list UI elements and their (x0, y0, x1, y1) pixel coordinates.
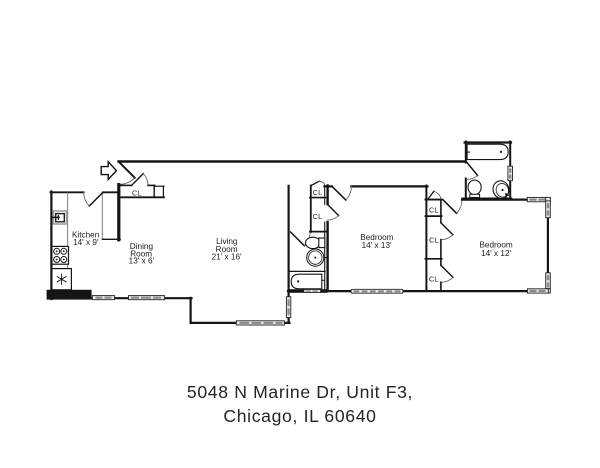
svg-text:14' x 12': 14' x 12' (481, 249, 511, 258)
svg-text:14' x 13': 14' x 13' (362, 241, 392, 250)
svg-text:13' x 6': 13' x 6' (129, 257, 155, 266)
svg-text:CL: CL (429, 206, 439, 215)
svg-text:Chicago, IL 60640: Chicago, IL 60640 (223, 406, 376, 426)
svg-text:14' x 9': 14' x 9' (73, 238, 99, 247)
svg-text:CL: CL (132, 188, 142, 197)
svg-text:5048 N Marine Dr, Unit F3,: 5048 N Marine Dr, Unit F3, (187, 382, 413, 402)
svg-text:CL: CL (429, 235, 439, 244)
svg-text:CL: CL (313, 188, 323, 197)
svg-text:21' x 16': 21' x 16' (212, 252, 242, 261)
svg-text:CL: CL (429, 274, 439, 283)
svg-text:CL: CL (313, 212, 323, 221)
